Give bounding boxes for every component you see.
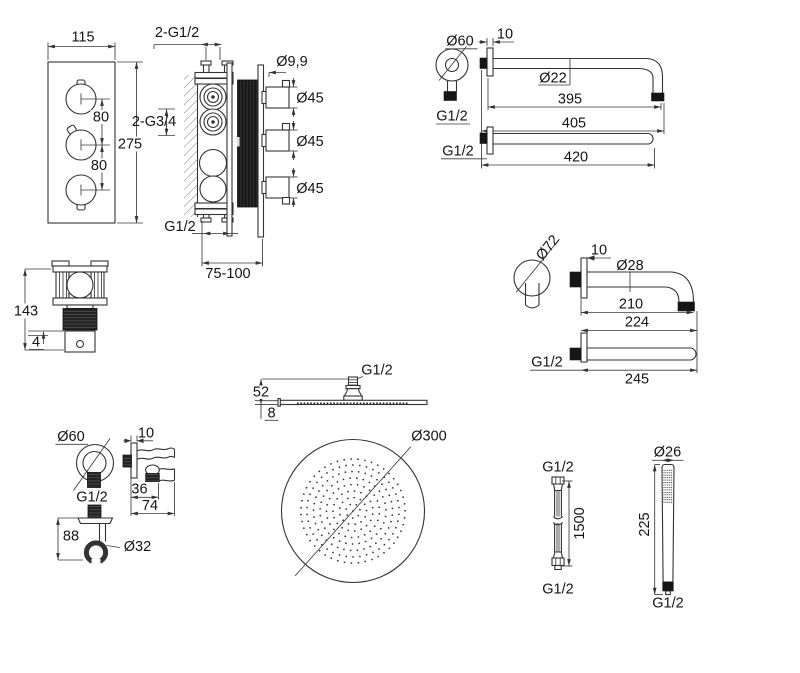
dim-spout-len-total: 224 — [625, 315, 649, 331]
dim-head-thread: G1/2 — [361, 363, 392, 379]
dim-arm-len-straight: 420 — [564, 150, 588, 166]
dim-spout-len-straight: 245 — [625, 372, 649, 388]
wall-hatch — [184, 75, 198, 217]
dim-outlet-depth2: 74 — [142, 498, 158, 514]
dim-outlet-flange: Ø60 — [57, 429, 84, 445]
dim-hose-thread-bottom: G1/2 — [542, 582, 573, 598]
outlet-escutcheon — [78, 518, 113, 524]
dim-arm-thread2: G1/2 — [442, 144, 473, 160]
rain-shower-head: 52 8 G1/2 Ø300 — [252, 363, 447, 583]
dim-knob-pitch-2: 80 — [91, 158, 107, 174]
handle-1 — [266, 87, 289, 108]
shower-hose: G1/2 G1/2 1500 — [542, 460, 588, 598]
dim-outlet-thread: G1/2 — [76, 490, 107, 506]
dim-spout-len-bend: 210 — [619, 297, 643, 313]
valve-bottom-view: 143 4 — [12, 261, 109, 352]
dim-head-thickness: 8 — [267, 406, 275, 422]
dim-head-height: 52 — [253, 385, 269, 401]
outlet-block — [65, 331, 95, 352]
dim-arm-len-total: 405 — [562, 116, 586, 132]
dim-screw: Ø9,9 — [276, 54, 307, 70]
dim-spout-wall-gap: 10 — [591, 243, 607, 259]
dim-arm-len-bend: 395 — [558, 92, 582, 108]
dim-wand-thread: G1/2 — [652, 596, 683, 612]
dim-outlet-height: 88 — [63, 529, 79, 545]
shower-set-technical-drawing: 115 275 80 80 — [0, 0, 800, 673]
dim-valve-height: 275 — [118, 137, 142, 153]
shower-arm-long: Ø60 G1/2 10 Ø22 395 405 — [436, 27, 664, 169]
dim-handle2: Ø45 — [296, 134, 323, 150]
hand-shower: Ø26 G1/2 225 — [637, 445, 684, 612]
handle-2 — [266, 130, 289, 151]
trim-plate — [258, 65, 264, 237]
dim-outlet-plate: Ø32 — [124, 539, 151, 555]
threaded-collar — [63, 309, 97, 331]
dim-side-ports: 2-G3/4 — [132, 114, 176, 130]
dim-spout-thread: G1/2 — [531, 355, 562, 371]
dim-spout-pipe: Ø28 — [616, 258, 643, 274]
dim-head-diameter: Ø300 — [411, 429, 446, 445]
dim-wand-diameter: Ø26 — [654, 445, 681, 461]
dim-arm-wall-gap: 10 — [497, 27, 513, 43]
handle-3 — [266, 177, 289, 198]
dim-arm-thread: G1/2 — [436, 109, 467, 125]
dim-outlet-wall-gap: 10 — [138, 426, 154, 442]
mounting-plate — [227, 63, 232, 236]
wall-outlet-elbow: Ø60 G1/2 10 36 74 — [56, 426, 175, 566]
valve-front-view: 115 275 80 80 — [48, 30, 145, 224]
dim-bottom-height: 143 — [14, 304, 38, 320]
dim-bottom-outlet: G1/2 — [164, 219, 195, 235]
brand-mark — [237, 137, 240, 147]
dim-wand-length: 225 — [637, 512, 653, 536]
dim-valve-width: 115 — [71, 30, 94, 46]
dim-spout-flange: Ø72 — [533, 232, 563, 263]
spout-flange-front — [514, 260, 550, 296]
dim-arm-pipe: Ø22 — [539, 71, 566, 87]
spout-arm-short: Ø72 10 Ø28 210 224 G1/2 245 — [514, 232, 697, 387]
dim-depth-range: 75-100 — [205, 266, 250, 282]
dim-arm-flange: Ø60 — [446, 34, 473, 50]
dim-handle3: Ø45 — [296, 181, 323, 197]
technical-drawing-canvas: 115 275 80 80 — [0, 0, 800, 673]
dim-knob-pitch-1: 80 — [93, 110, 109, 126]
dim-hose-length: 1500 — [572, 507, 588, 539]
recessed-box — [238, 80, 258, 207]
dim-outlet-depth1: 36 — [131, 482, 147, 498]
dim-inlets: 2-G1/2 — [155, 25, 199, 41]
dim-bottom-gap: 4 — [32, 335, 40, 351]
dim-hose-thread-top: G1/2 — [542, 460, 573, 476]
dim-handle1: Ø45 — [296, 91, 323, 107]
head-connector — [349, 377, 358, 386]
valve-side-view: 2-G1/2 2-G3/4 G1/2 75-100 Ø9,9 Ø45 Ø45 Ø… — [132, 25, 324, 282]
